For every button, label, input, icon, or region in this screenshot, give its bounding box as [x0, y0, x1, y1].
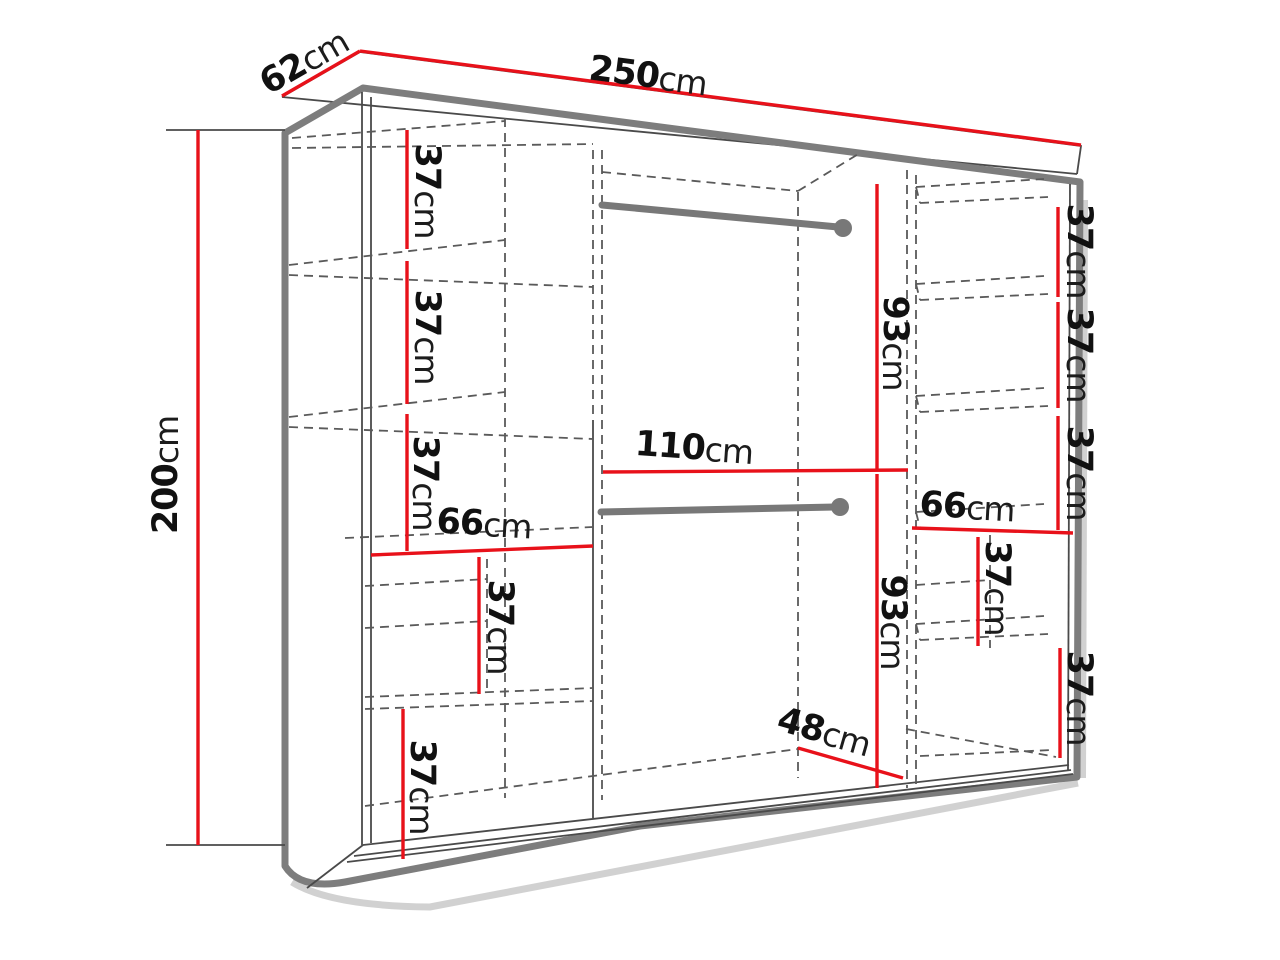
upper-rod-end-knob — [834, 219, 852, 237]
lower-hanging-rod — [601, 507, 835, 512]
middle-110-line — [603, 470, 908, 472]
wardrobe-dimension-diagram: 250cm 62cm 200cm 37cm 37cm 37cm 66cm 37c… — [0, 0, 1280, 960]
label-right-66: 66cm — [919, 485, 1016, 530]
label-right-37-3: 37cm — [1059, 425, 1099, 520]
label-left-37-4: 37cm — [480, 579, 520, 674]
upper-hanging-rod — [602, 205, 838, 227]
diagram-stage: 250cm 62cm 200cm 37cm 37cm 37cm 66cm 37c… — [0, 0, 1280, 960]
label-height-200: 200cm — [146, 416, 186, 534]
right-column-shelves — [916, 179, 1052, 756]
width-250-line — [360, 51, 1081, 145]
label-depth-62: 62cm — [253, 21, 355, 103]
label-middle-93-lower: 93cm — [873, 574, 913, 669]
label-left-66: 66cm — [436, 502, 533, 547]
label-right-37-5: 37cm — [1059, 650, 1099, 745]
label-middle-110: 110cm — [634, 424, 755, 472]
label-width-250: 250cm — [587, 49, 710, 104]
label-right-37-4: 37cm — [977, 540, 1017, 635]
label-left-37-2: 37cm — [407, 289, 447, 384]
label-right-37-1: 37cm — [1059, 203, 1099, 298]
dimension-labels: 250cm 62cm 200cm 37cm 37cm 37cm 66cm 37c… — [146, 21, 1099, 835]
left-66-line — [371, 546, 593, 555]
label-left-37-5: 37cm — [402, 739, 442, 834]
label-left-37-1: 37cm — [407, 143, 447, 238]
right-66-line — [912, 528, 1073, 533]
label-middle-93-upper: 93cm — [875, 295, 915, 390]
lower-rod-end-knob — [831, 498, 849, 516]
label-right-37-2: 37cm — [1059, 307, 1099, 402]
